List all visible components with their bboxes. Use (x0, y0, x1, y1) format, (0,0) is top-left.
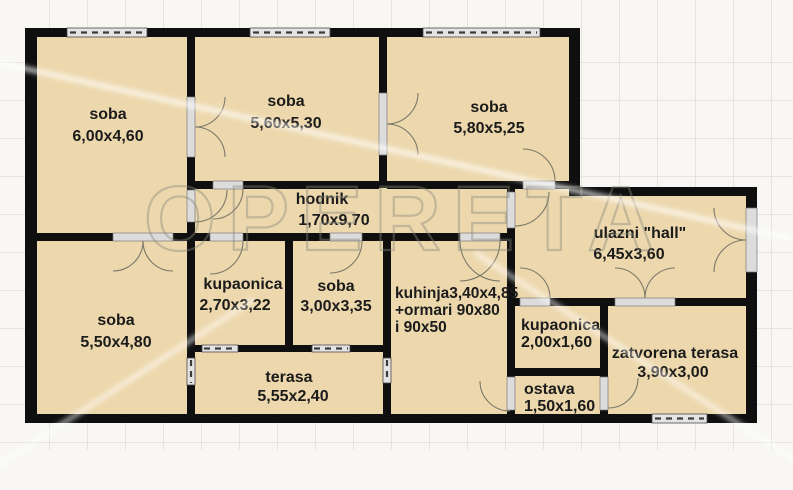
wall (187, 385, 195, 414)
room-label-kupaonica-2: kupaonica 2,00x1,60 (521, 317, 600, 351)
room-name: soba (470, 99, 507, 116)
room-dims: 3,00x3,35 (300, 298, 371, 315)
room-name: terasa (265, 369, 312, 386)
room-name: soba (267, 93, 304, 110)
wall (515, 368, 608, 376)
room-name: kupaonica (203, 276, 282, 293)
room-dims: 5,60x5,30 (250, 115, 321, 132)
room-name: soba (97, 312, 134, 329)
room-dims: 5,50x4,80 (80, 334, 151, 351)
wall (25, 414, 757, 423)
watermark-text: OPERETA (144, 168, 666, 270)
room-dims: 6,00x4,60 (72, 128, 143, 145)
room-name-dims: kuhinja3,40x4,85 (395, 285, 519, 302)
wall (379, 36, 387, 93)
wall (550, 298, 615, 306)
entrance-door-opening (746, 208, 757, 272)
room-name: zatvorena terasa (612, 345, 738, 362)
floor-plan-drawing: soba 6,00x4,60 soba 5,60x5,30 soba 5,80x… (0, 0, 793, 450)
wall (675, 298, 748, 306)
room-extra: +ormari 90x80 (395, 302, 500, 319)
room-dims: 1,50x1,60 (524, 398, 595, 415)
room-dims: 5,55x2,40 (257, 388, 328, 405)
room-dims: 2,70x3,22 (199, 297, 270, 314)
wall (195, 345, 202, 352)
door-opening (507, 377, 515, 410)
door-opening (379, 93, 387, 155)
room-dims: 2,00x1,60 (521, 334, 592, 351)
wall (238, 345, 312, 352)
wall (600, 410, 608, 414)
room-dims: 5,80x5,25 (453, 120, 524, 137)
room-dims: 3,90x3,00 (637, 364, 708, 381)
room-name: kupaonica (521, 317, 600, 334)
door-opening (187, 97, 195, 157)
wall (350, 345, 391, 352)
wall (383, 383, 391, 414)
room-name: ostava (524, 381, 575, 398)
wall (37, 233, 113, 241)
room-name: soba (317, 278, 354, 295)
floor-plan-page: soba 6,00x4,60 soba 5,60x5,30 soba 5,80x… (0, 0, 793, 450)
door-opening (615, 298, 675, 306)
door-opening (600, 377, 608, 410)
door-opening (520, 298, 550, 306)
wall (187, 36, 195, 97)
room-extra: i 90x50 (395, 319, 447, 336)
room-name: soba (89, 106, 126, 123)
wall (25, 28, 37, 423)
wall (600, 306, 608, 377)
